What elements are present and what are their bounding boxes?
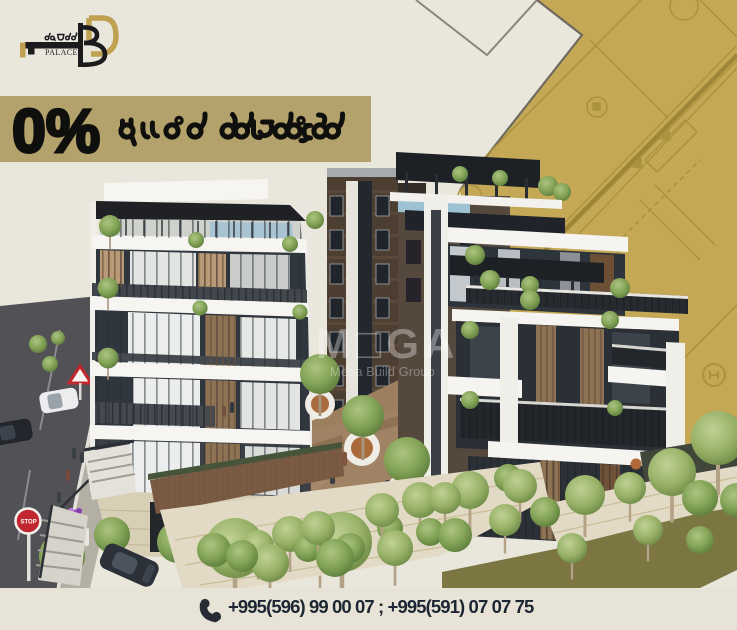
svg-text:Mega Build Group: Mega Build Group [330, 364, 435, 379]
svg-text:+995(596) 99 00 07 ; +995(591: +995(596) 99 00 07 ; +995(591) 07 07 75 [228, 596, 534, 617]
svg-text:M□GA: M□GA [316, 320, 459, 367]
svg-text:STOP: STOP [21, 520, 37, 526]
svg-text:0%: 0% [12, 97, 100, 165]
svg-text:PALACE: PALACE [45, 48, 78, 57]
